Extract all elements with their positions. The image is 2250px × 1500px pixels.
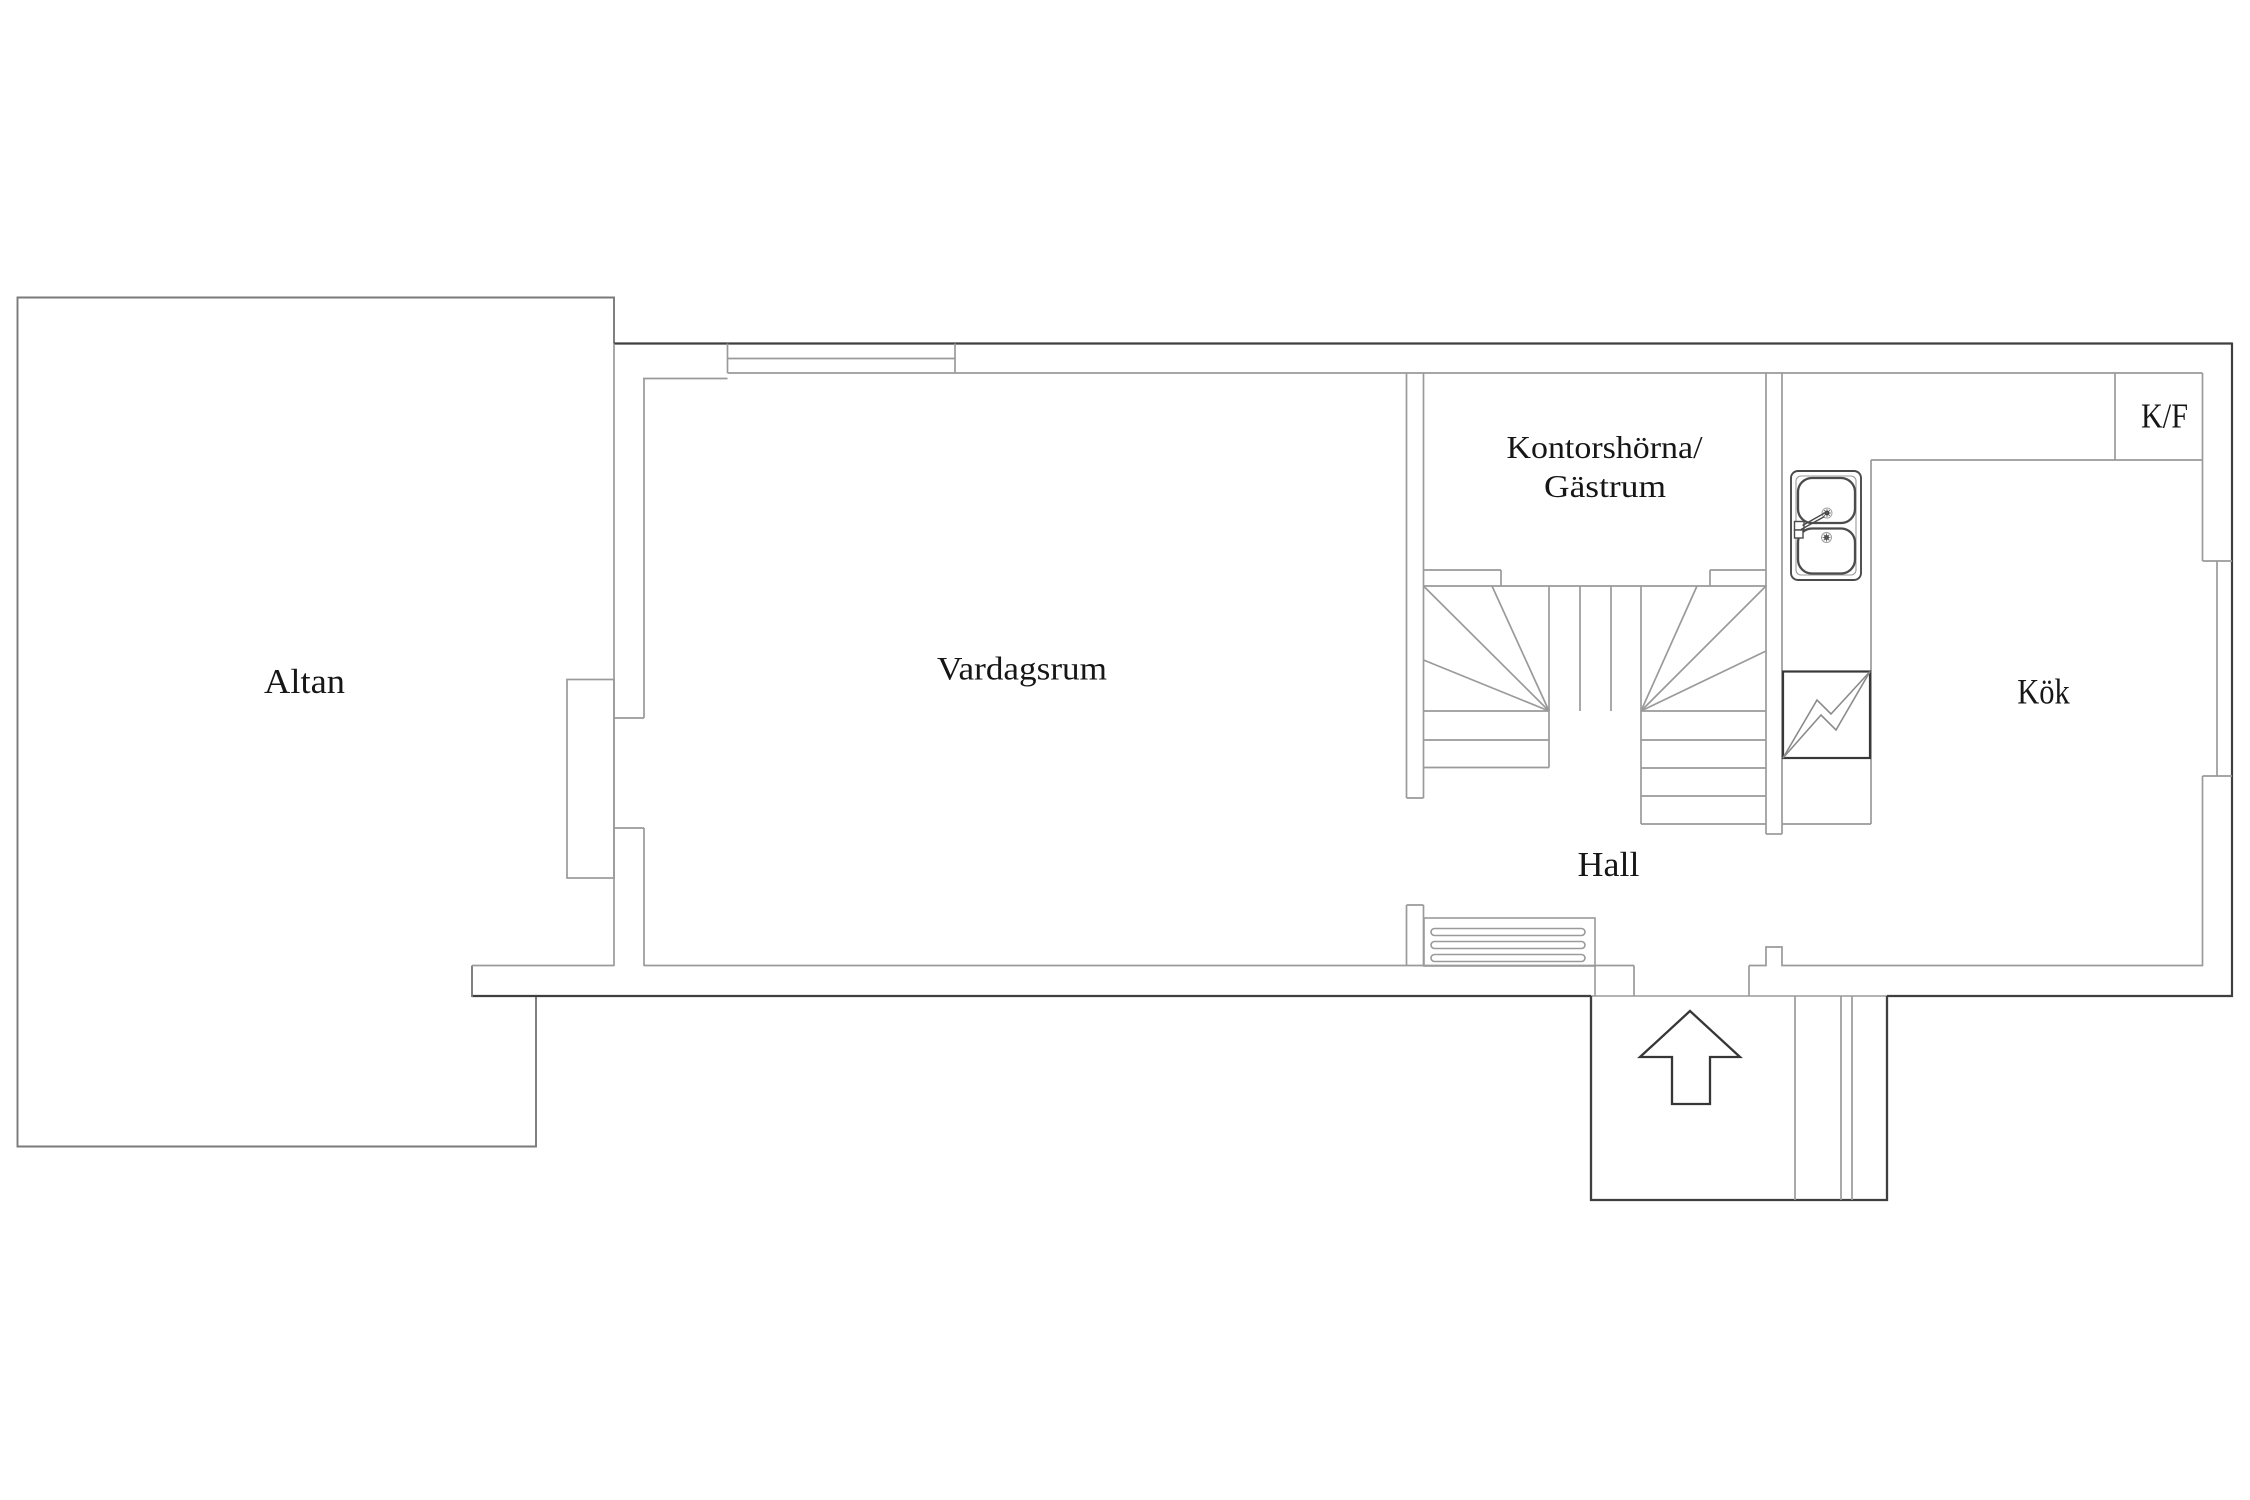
svg-text:Kontorshörna/: Kontorshörna/ — [1507, 429, 1703, 465]
svg-text:Altan: Altan — [264, 662, 345, 701]
svg-text:Kök: Kök — [2017, 672, 2070, 712]
svg-text:Gästrum: Gästrum — [1544, 468, 1666, 504]
svg-text:K/F: K/F — [2141, 398, 2188, 436]
svg-text:Hall: Hall — [1578, 845, 1640, 884]
svg-text:Vardagsrum: Vardagsrum — [937, 652, 1107, 688]
